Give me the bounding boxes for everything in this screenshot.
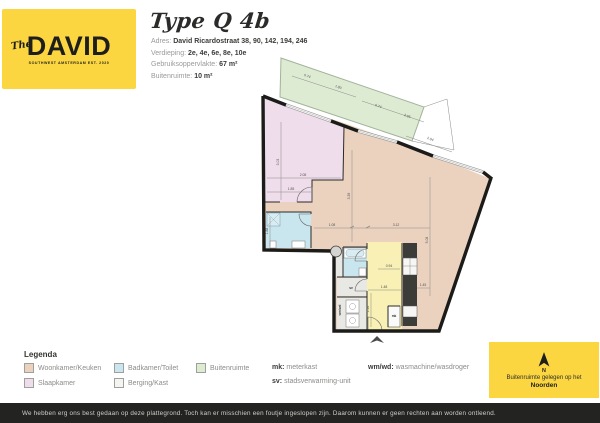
swatch-berging [114, 378, 124, 388]
legend-title: Legenda [24, 350, 57, 359]
disclaimer-text: We hebben erg ons best gedaan op deze pl… [0, 410, 496, 417]
abbrev-text: stadsverwarming-unit [284, 378, 351, 385]
abbrev-key: mk: [272, 364, 284, 371]
label-wmwd: wm/wd [338, 305, 342, 317]
svg-text:1.48: 1.48 [381, 285, 388, 289]
swatch-badkamer [114, 363, 124, 373]
washbasin-2 [359, 268, 366, 276]
svg-text:5.08: 5.08 [425, 237, 429, 244]
kitchen-counter [403, 243, 417, 326]
abbrev-text: wasmachine/wasdroger [396, 364, 470, 371]
entrance-arrow-icon [370, 336, 384, 343]
svg-text:1.08: 1.08 [329, 223, 336, 227]
legend-item-woonkamer: Woonkamer/Keuken [24, 363, 101, 373]
svg-text:1.45: 1.45 [420, 283, 427, 287]
label-sv: sv [349, 286, 353, 290]
swatch-woonkamer [24, 363, 34, 373]
north-arrow-icon: N [535, 351, 553, 373]
abbrev-key: wm/wd: [368, 364, 394, 371]
legend-item-buitenruimte: Buitenruimte [196, 363, 249, 373]
legend-item-slaapkamer: Slaapkamer [24, 378, 75, 388]
legend-label: Berging/Kast [128, 380, 168, 387]
svg-text:1.85: 1.85 [288, 187, 295, 191]
legend-label: Slaapkamer [38, 380, 75, 387]
legend-label: Woonkamer/Keuken [38, 365, 101, 372]
svg-text:2.08: 2.08 [300, 173, 307, 177]
toilet-fixture [270, 241, 276, 248]
north-text: Buitenruimte gelegen op het [506, 375, 581, 381]
svg-text:3.39: 3.39 [347, 193, 351, 200]
legend-item-berging: Berging/Kast [114, 378, 168, 388]
legend-abbrev-sv: sv: stadsverwarming-unit [272, 378, 351, 385]
swatch-slaapkamer [24, 378, 34, 388]
washbasin [292, 241, 305, 248]
legend-abbrev-wmwd: wm/wd: wasmachine/wasdroger [368, 364, 469, 371]
legend-item-badkamer: Badkamer/Toilet [114, 363, 178, 373]
north-direction: Noorden [531, 382, 558, 389]
svg-text:3.03: 3.03 [276, 159, 280, 166]
legend-label: Badkamer/Toilet [128, 365, 178, 372]
abbrev-text: meterkast [286, 364, 317, 371]
north-indicator-box: N Buitenruimte gelegen op het Noorden [489, 342, 599, 398]
legend-label: Buitenruimte [210, 365, 249, 372]
abbrev-key: sv: [272, 378, 282, 385]
svg-text:3.12: 3.12 [393, 223, 400, 227]
svg-text:2.94: 2.94 [427, 136, 435, 142]
shower [267, 213, 280, 226]
svg-text:1.16: 1.16 [366, 306, 370, 313]
label-mk: mk [392, 314, 397, 318]
swatch-buitenruimte [196, 363, 206, 373]
legend-abbrev-mk: mk: meterkast [272, 364, 317, 371]
disclaimer-bar: We hebben erg ons best gedaan op deze pl… [0, 403, 600, 423]
column [331, 246, 342, 257]
svg-text:1.88: 1.88 [265, 228, 269, 235]
svg-text:N: N [542, 368, 546, 373]
svg-text:0.94: 0.94 [386, 264, 393, 268]
page: The DAVID SOUTHWEST AMSTERDAM EST. 2020 … [0, 0, 600, 423]
